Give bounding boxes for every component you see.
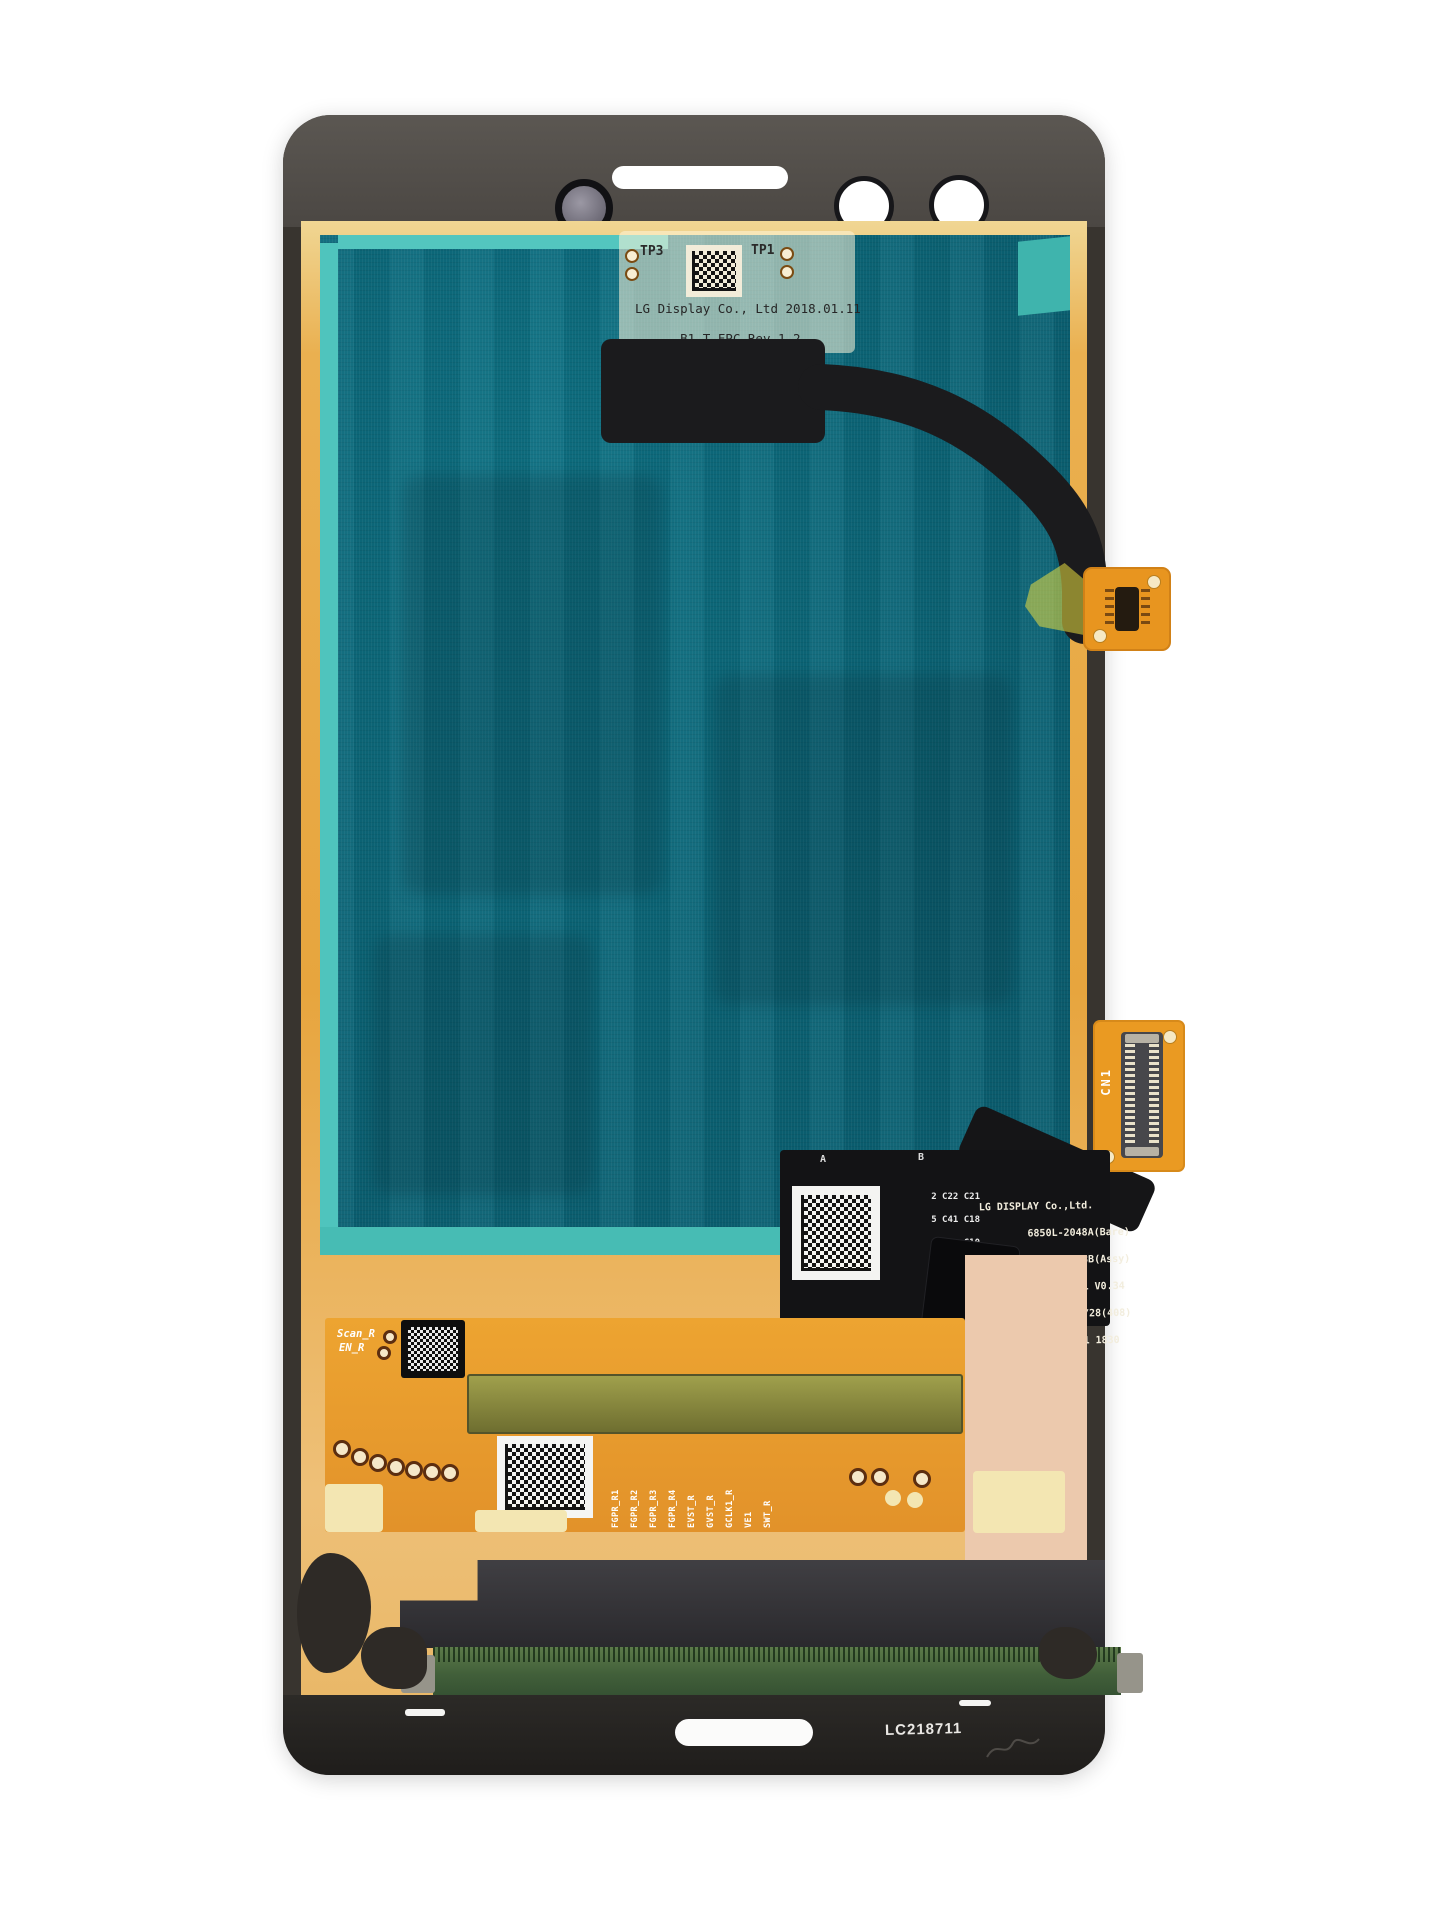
cn1-label: CN1 bbox=[1099, 1068, 1113, 1096]
pale-pad bbox=[907, 1492, 923, 1508]
pale-pad bbox=[885, 1490, 901, 1506]
pale-pad bbox=[325, 1484, 383, 1532]
green-pcb-strip bbox=[433, 1647, 1121, 1695]
bezel-slot bbox=[675, 1719, 813, 1746]
print-line: 6850L-2048A(Bare) bbox=[1027, 1227, 1130, 1240]
signal-label: FGPR_R1 bbox=[611, 1434, 621, 1528]
pad-dot bbox=[1147, 575, 1161, 589]
testpoint-ring bbox=[423, 1463, 441, 1481]
testpoint-pad bbox=[780, 265, 794, 279]
en-r-label: EN_R bbox=[339, 1342, 364, 1354]
pale-pad bbox=[973, 1471, 1065, 1533]
bezel-mark-left bbox=[405, 1709, 445, 1716]
testpoint-ring bbox=[333, 1440, 351, 1458]
signal-label: GCLK1_R bbox=[725, 1434, 735, 1528]
testpoint-pad bbox=[625, 267, 639, 281]
silk-line: 5 C41 C18 bbox=[931, 1215, 980, 1225]
testpoint-ring bbox=[441, 1464, 459, 1482]
testpoint-ring bbox=[913, 1470, 931, 1488]
board-connector bbox=[1121, 1032, 1163, 1158]
signal-label: SWT_R bbox=[763, 1434, 773, 1528]
lcd-assembly-body: TP3 TP1 LG Display Co., Ltd 2018.01.11 B… bbox=[283, 115, 1105, 1775]
bezel-mark-right bbox=[959, 1700, 991, 1706]
signal-silkscreen-row: FGPR_R1 FGPR_R2 FGPR_R3 FGPR_R4 EVST_R G… bbox=[611, 1434, 773, 1528]
testpoint-ring bbox=[383, 1330, 397, 1344]
photo-stage: TP3 TP1 LG Display Co., Ltd 2018.01.11 B… bbox=[0, 0, 1445, 1927]
datamatrix-cells bbox=[692, 251, 736, 291]
adhesive-blob bbox=[1039, 1627, 1097, 1679]
qr-cells bbox=[505, 1444, 585, 1510]
testpoint-ring bbox=[369, 1454, 387, 1472]
datamatrix-label bbox=[792, 1186, 880, 1280]
driver-bond-bar bbox=[467, 1374, 963, 1434]
earpiece-slot bbox=[612, 166, 788, 189]
qr-code-black bbox=[401, 1320, 465, 1378]
testpoint-ring bbox=[377, 1346, 391, 1360]
pale-pad bbox=[475, 1510, 567, 1532]
frame-serial: LC218711 bbox=[885, 1720, 963, 1739]
signal-label: GVST_R bbox=[706, 1434, 716, 1528]
connector-pins bbox=[1125, 1044, 1135, 1146]
ic-chip bbox=[1115, 587, 1139, 631]
pad-dot bbox=[1093, 629, 1107, 643]
qr-code-white bbox=[497, 1436, 593, 1518]
pad-dot bbox=[1163, 1030, 1177, 1044]
datamatrix-code-top bbox=[686, 245, 742, 297]
testpoint-ring bbox=[871, 1468, 889, 1486]
film-mottling bbox=[713, 675, 1013, 1005]
testpoint-pad bbox=[625, 249, 639, 263]
connector-cap bbox=[1125, 1147, 1159, 1156]
qr-cells bbox=[408, 1327, 458, 1371]
print-line: LG DISPLAY Co.,Ltd. bbox=[979, 1200, 1094, 1213]
testpoint-ring bbox=[405, 1461, 423, 1479]
testpoint-label-tp3: TP3 bbox=[640, 244, 663, 259]
signal-label: FGPR_R3 bbox=[649, 1434, 659, 1528]
top-bezel bbox=[283, 115, 1105, 227]
scratch-marking bbox=[983, 1729, 1043, 1765]
print-line: LG Display Co., Ltd 2018.01.11 bbox=[635, 301, 861, 316]
scan-r-label: Scan_R bbox=[337, 1328, 375, 1340]
film-mottling bbox=[373, 935, 593, 1195]
testpoint-ring bbox=[849, 1468, 867, 1486]
testpoint-ring bbox=[387, 1458, 405, 1476]
metal-endcap-right bbox=[1117, 1653, 1143, 1693]
connector-pins bbox=[1149, 1044, 1159, 1146]
testpoint-ring bbox=[351, 1448, 369, 1466]
flex-ic-tab bbox=[1083, 567, 1171, 651]
silk-line: 2 C22 C21 bbox=[931, 1192, 980, 1202]
testpoint-pad bbox=[780, 247, 794, 261]
signal-label: FGPR_R4 bbox=[668, 1434, 678, 1528]
datamatrix-cells bbox=[801, 1195, 871, 1271]
testpoint-label-tp1: TP1 bbox=[751, 243, 774, 258]
aqua-edge-left bbox=[320, 243, 338, 1243]
fiducial-a: A bbox=[820, 1154, 826, 1165]
signal-label: VE1 bbox=[744, 1434, 754, 1528]
signal-label: FGPR_R2 bbox=[630, 1434, 640, 1528]
ic-leads-left bbox=[1105, 589, 1114, 629]
connector-cap bbox=[1125, 1034, 1159, 1043]
bottom-black-flex-bar bbox=[400, 1560, 1105, 1648]
bottom-orange-flex: Scan_R EN_R FGPR_R1 FGPR_R2 FGPR_R3 FGPR… bbox=[325, 1318, 965, 1532]
signal-label: EVST_R bbox=[687, 1434, 697, 1528]
aqua-edge-topright bbox=[1018, 236, 1070, 315]
fiducial-b: B bbox=[918, 1152, 924, 1163]
bottom-bezel: LC218711 bbox=[283, 1695, 1105, 1775]
ic-leads-right bbox=[1141, 589, 1150, 629]
